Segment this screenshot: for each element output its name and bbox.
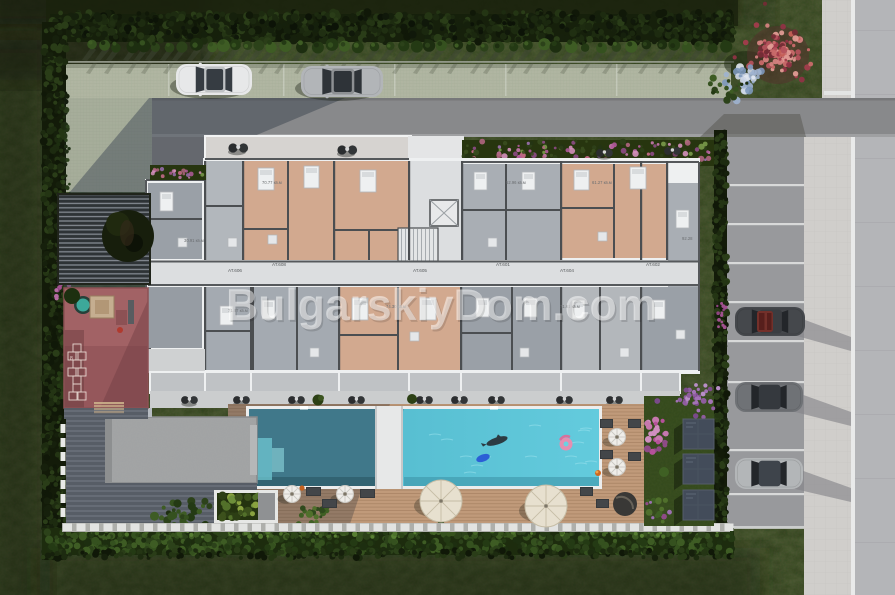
svg-text:70.77 кв.м: 70.77 кв.м [262,180,282,185]
svg-text:52.96 кв.м: 52.96 кв.м [506,180,526,185]
svg-text:AT.608: AT.608 [272,262,286,267]
svg-text:AT.606: AT.606 [228,268,242,273]
svg-text:AT.605: AT.605 [413,268,427,273]
svg-text:AT.604: AT.604 [560,268,574,273]
svg-text:8: 8 [70,356,73,362]
svg-text:AT.602: AT.602 [646,262,660,267]
svg-text:61.27 кв.м: 61.27 кв.м [592,180,612,185]
svg-text:AT.601: AT.601 [496,262,510,267]
svg-text:30.91 кв.м: 30.91 кв.м [184,238,204,243]
svg-text:92.28: 92.28 [682,236,693,241]
svg-text:BulgarskiyDom.com: BulgarskiyDom.com [226,281,656,330]
